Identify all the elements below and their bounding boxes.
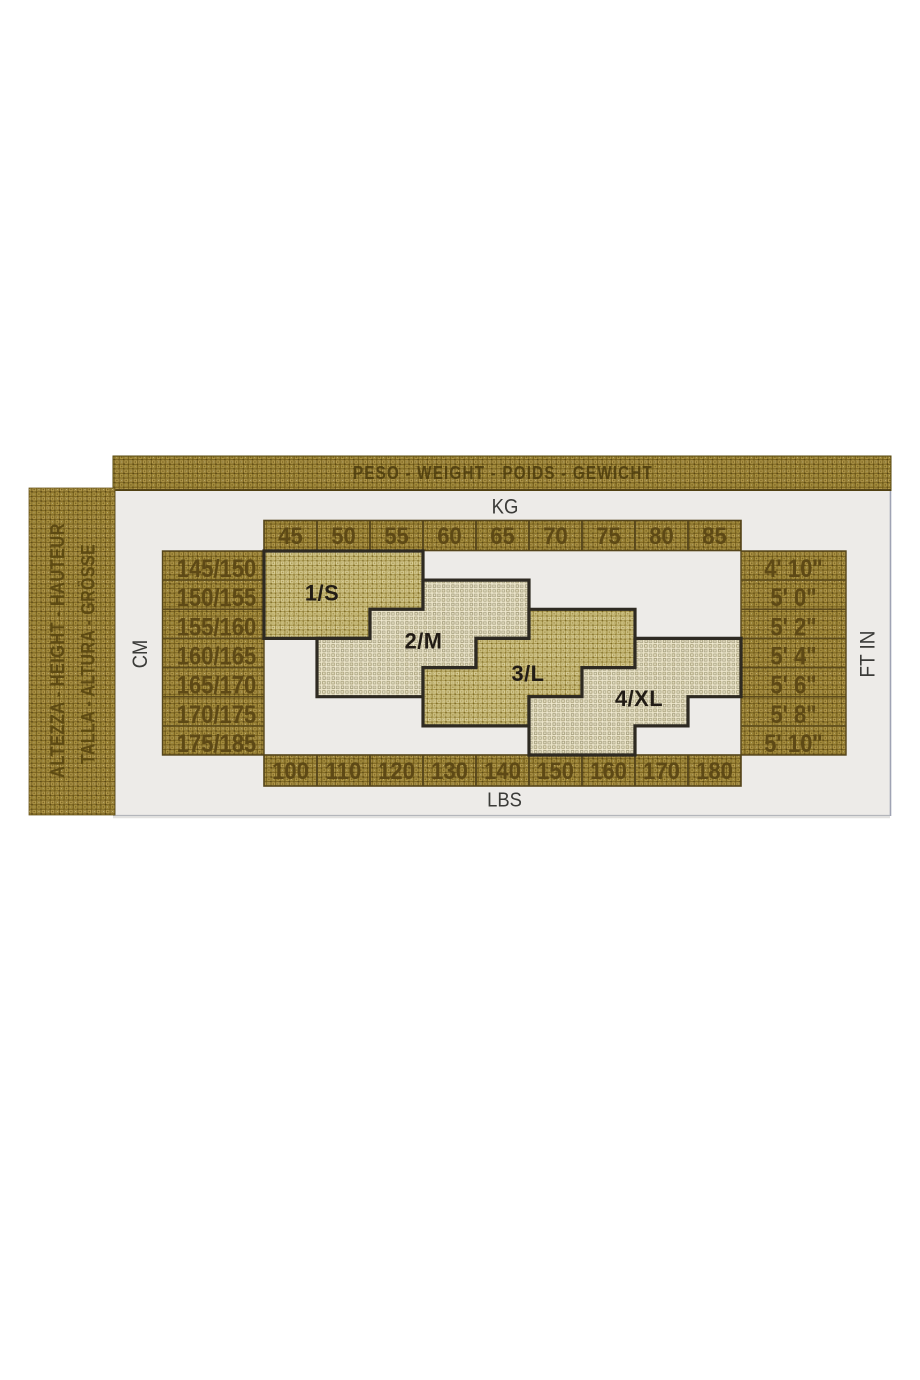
svg-text:55: 55 [384, 522, 409, 549]
svg-text:4/XL: 4/XL [615, 686, 663, 711]
svg-text:75: 75 [596, 522, 621, 549]
svg-text:50: 50 [331, 522, 356, 549]
svg-text:70: 70 [543, 522, 568, 549]
svg-text:160/165: 160/165 [177, 642, 256, 670]
svg-text:5' 0": 5' 0" [770, 584, 816, 612]
svg-text:160: 160 [590, 757, 627, 784]
svg-text:45: 45 [278, 522, 303, 549]
svg-text:2/M: 2/M [405, 628, 443, 653]
svg-text:KG: KG [492, 495, 519, 518]
svg-text:LBS: LBS [487, 790, 522, 812]
svg-text:150: 150 [537, 757, 574, 784]
svg-text:5' 2": 5' 2" [770, 613, 816, 641]
svg-text:110: 110 [326, 757, 362, 784]
svg-text:150/155: 150/155 [177, 584, 256, 612]
svg-text:120: 120 [378, 757, 415, 784]
svg-text:TALLA - ALTURA - GRÖSSE: TALLA - ALTURA - GRÖSSE [77, 544, 99, 764]
svg-text:155/160: 155/160 [177, 613, 256, 641]
svg-text:3/L: 3/L [512, 661, 545, 686]
svg-text:60: 60 [437, 522, 462, 549]
svg-text:170/175: 170/175 [177, 701, 256, 729]
svg-text:5' 8": 5' 8" [770, 701, 816, 729]
svg-text:145/150: 145/150 [177, 555, 256, 583]
svg-text:165/170: 165/170 [177, 671, 256, 699]
svg-text:5' 6": 5' 6" [770, 671, 816, 699]
svg-text:175/185: 175/185 [177, 730, 256, 758]
svg-text:1/S: 1/S [305, 580, 339, 605]
svg-text:140: 140 [484, 757, 521, 784]
svg-text:5' 4": 5' 4" [770, 642, 816, 670]
svg-text:65: 65 [490, 522, 515, 549]
svg-text:CM: CM [129, 640, 153, 668]
svg-text:100: 100 [272, 757, 309, 784]
svg-text:5' 10": 5' 10" [764, 730, 822, 758]
svg-text:4' 10": 4' 10" [764, 555, 822, 583]
svg-text:PESO - WEIGHT - POIDS - GEWICH: PESO - WEIGHT - POIDS - GEWICHT [353, 463, 653, 484]
svg-text:85: 85 [702, 522, 727, 549]
svg-text:180: 180 [696, 757, 733, 784]
svg-text:170: 170 [643, 757, 680, 784]
svg-text:ALTEZZA - HEIGHT - HAUTEUR: ALTEZZA - HEIGHT - HAUTEUR [47, 523, 69, 778]
svg-text:80: 80 [649, 522, 674, 549]
svg-text:130: 130 [431, 757, 468, 784]
svg-text:FT IN: FT IN [857, 631, 880, 678]
